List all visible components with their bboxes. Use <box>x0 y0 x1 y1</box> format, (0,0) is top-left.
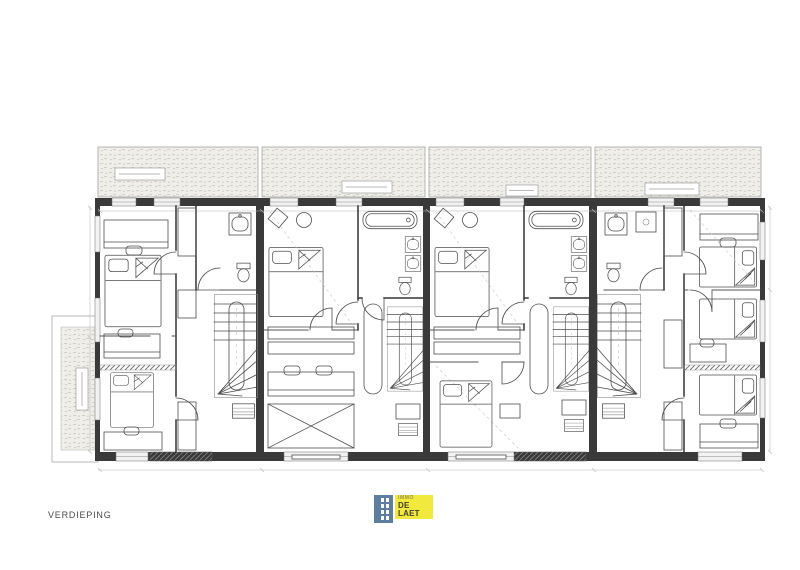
bed-icon <box>699 299 756 339</box>
vide-cross <box>268 404 354 448</box>
bed-icon <box>111 373 154 428</box>
shaft <box>178 290 196 318</box>
sink-icon <box>405 256 421 272</box>
table-icon <box>297 213 312 228</box>
company-logo: IMMO DE LAET <box>374 495 433 523</box>
sink-icon <box>571 237 587 253</box>
desk-icon <box>700 214 758 240</box>
bed-icon <box>699 247 756 287</box>
toilet-icon <box>565 277 577 295</box>
bathtub-icon <box>363 211 417 228</box>
bed-icon <box>699 375 756 415</box>
shaft <box>178 208 196 256</box>
logo-box: IMMO DE LAET <box>395 495 433 519</box>
desk-icon <box>268 372 354 396</box>
cabinet-icon <box>565 419 584 431</box>
bed-icon <box>105 255 161 327</box>
door-arcs <box>154 252 220 420</box>
desk-icon <box>500 404 520 418</box>
shaft <box>664 320 682 368</box>
party-wall <box>589 198 597 461</box>
insulated-partition <box>100 365 176 370</box>
shaft <box>664 208 682 256</box>
unit-1 <box>100 206 258 452</box>
bed-icon <box>269 247 323 316</box>
shaft <box>562 400 586 415</box>
unit-3 <box>430 206 589 448</box>
bathroom <box>605 212 656 282</box>
toilet-icon <box>399 277 411 295</box>
staircase-icon <box>387 307 423 391</box>
bathroom <box>229 213 251 282</box>
chair-icon <box>126 246 142 255</box>
bed-icon <box>435 247 489 316</box>
cabinet-icon <box>232 404 254 418</box>
roof-strip <box>98 147 761 197</box>
bathroom <box>363 211 421 294</box>
cabinet-icon <box>399 423 418 435</box>
chair-icon <box>316 366 332 375</box>
insulated-partition <box>684 365 760 370</box>
sink-icon <box>229 213 251 235</box>
sink-icon <box>405 237 421 253</box>
desk-icon <box>104 220 168 248</box>
door-arcs <box>640 252 712 420</box>
shower-icon <box>636 212 656 232</box>
terrace-left <box>52 316 98 462</box>
staircase-icon <box>553 307 589 391</box>
floorplan-svg <box>0 0 800 565</box>
chair-icon <box>700 339 714 347</box>
bathroom <box>529 211 587 294</box>
unit-4 <box>597 206 760 452</box>
void-railing <box>434 327 520 339</box>
door-arcs <box>476 302 524 384</box>
bathtub-icon <box>529 211 583 228</box>
building-icon <box>374 495 393 523</box>
chair-icon <box>720 419 736 428</box>
desk-icon <box>104 334 160 358</box>
chair-icon <box>124 427 139 435</box>
chair-icon <box>284 366 300 375</box>
cabinet-icon <box>602 404 624 418</box>
sink-icon <box>605 213 627 235</box>
unit-2 <box>264 206 423 448</box>
staircase-icon <box>214 295 258 398</box>
plan-title: VERDIEPING <box>48 510 112 520</box>
void-railing <box>268 327 354 339</box>
party-wall <box>423 198 430 461</box>
stair-rail <box>530 304 548 394</box>
toilet-icon <box>607 263 620 282</box>
staircase-icon <box>597 295 641 398</box>
table-icon <box>463 213 478 228</box>
logo-main-text: DE LAET <box>398 502 430 518</box>
shaft <box>664 402 682 450</box>
toilet-icon <box>237 263 250 282</box>
shaft <box>178 402 196 450</box>
void-railing <box>434 342 520 354</box>
chair-icon <box>720 238 736 247</box>
canvas: VERDIEPING IMMO DE LAET <box>0 0 800 565</box>
shaft <box>396 404 420 419</box>
void-railing <box>268 342 354 354</box>
sink-icon <box>571 256 587 272</box>
